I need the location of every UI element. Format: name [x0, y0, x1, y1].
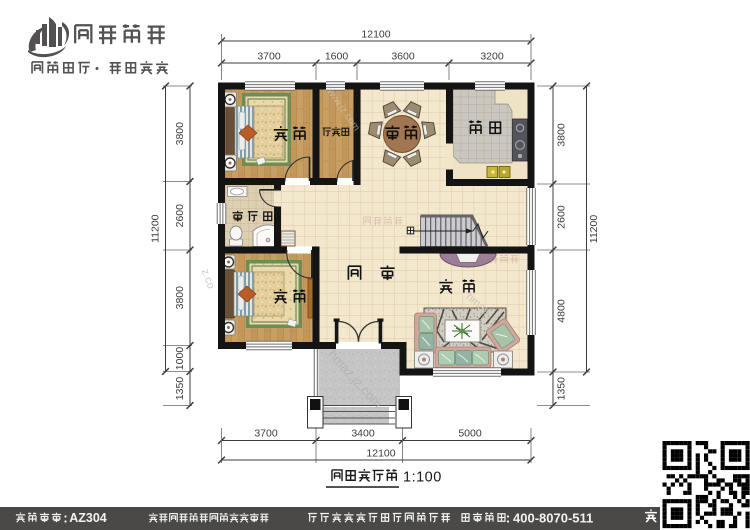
svg-text:11200: 11200 [150, 214, 162, 243]
svg-text:3800: 3800 [556, 123, 568, 147]
svg-text:1:100: 1:100 [403, 470, 442, 486]
svg-text:1600: 1600 [325, 51, 349, 63]
svg-text:11200: 11200 [588, 215, 600, 244]
svg-text:2600: 2600 [174, 204, 186, 228]
svg-text:3800: 3800 [174, 122, 186, 146]
svg-text:3800: 3800 [174, 286, 186, 310]
svg-text:5000: 5000 [458, 428, 482, 440]
svg-text:4800: 4800 [556, 299, 568, 323]
svg-text:1000: 1000 [174, 347, 186, 371]
svg-text:1350: 1350 [174, 377, 186, 401]
svg-text:1350: 1350 [556, 377, 568, 401]
svg-text:3600: 3600 [391, 51, 415, 63]
svg-text:3200: 3200 [480, 51, 504, 63]
svg-text:3400: 3400 [351, 428, 375, 440]
svg-text:AZ304: AZ304 [69, 511, 107, 525]
svg-text:400-8070-511: 400-8070-511 [513, 511, 593, 526]
svg-text:3700: 3700 [254, 428, 278, 440]
svg-text:12100: 12100 [361, 29, 390, 41]
svg-text:12100: 12100 [366, 448, 395, 460]
svg-text:3700: 3700 [257, 51, 281, 63]
svg-text:2600: 2600 [556, 205, 568, 229]
